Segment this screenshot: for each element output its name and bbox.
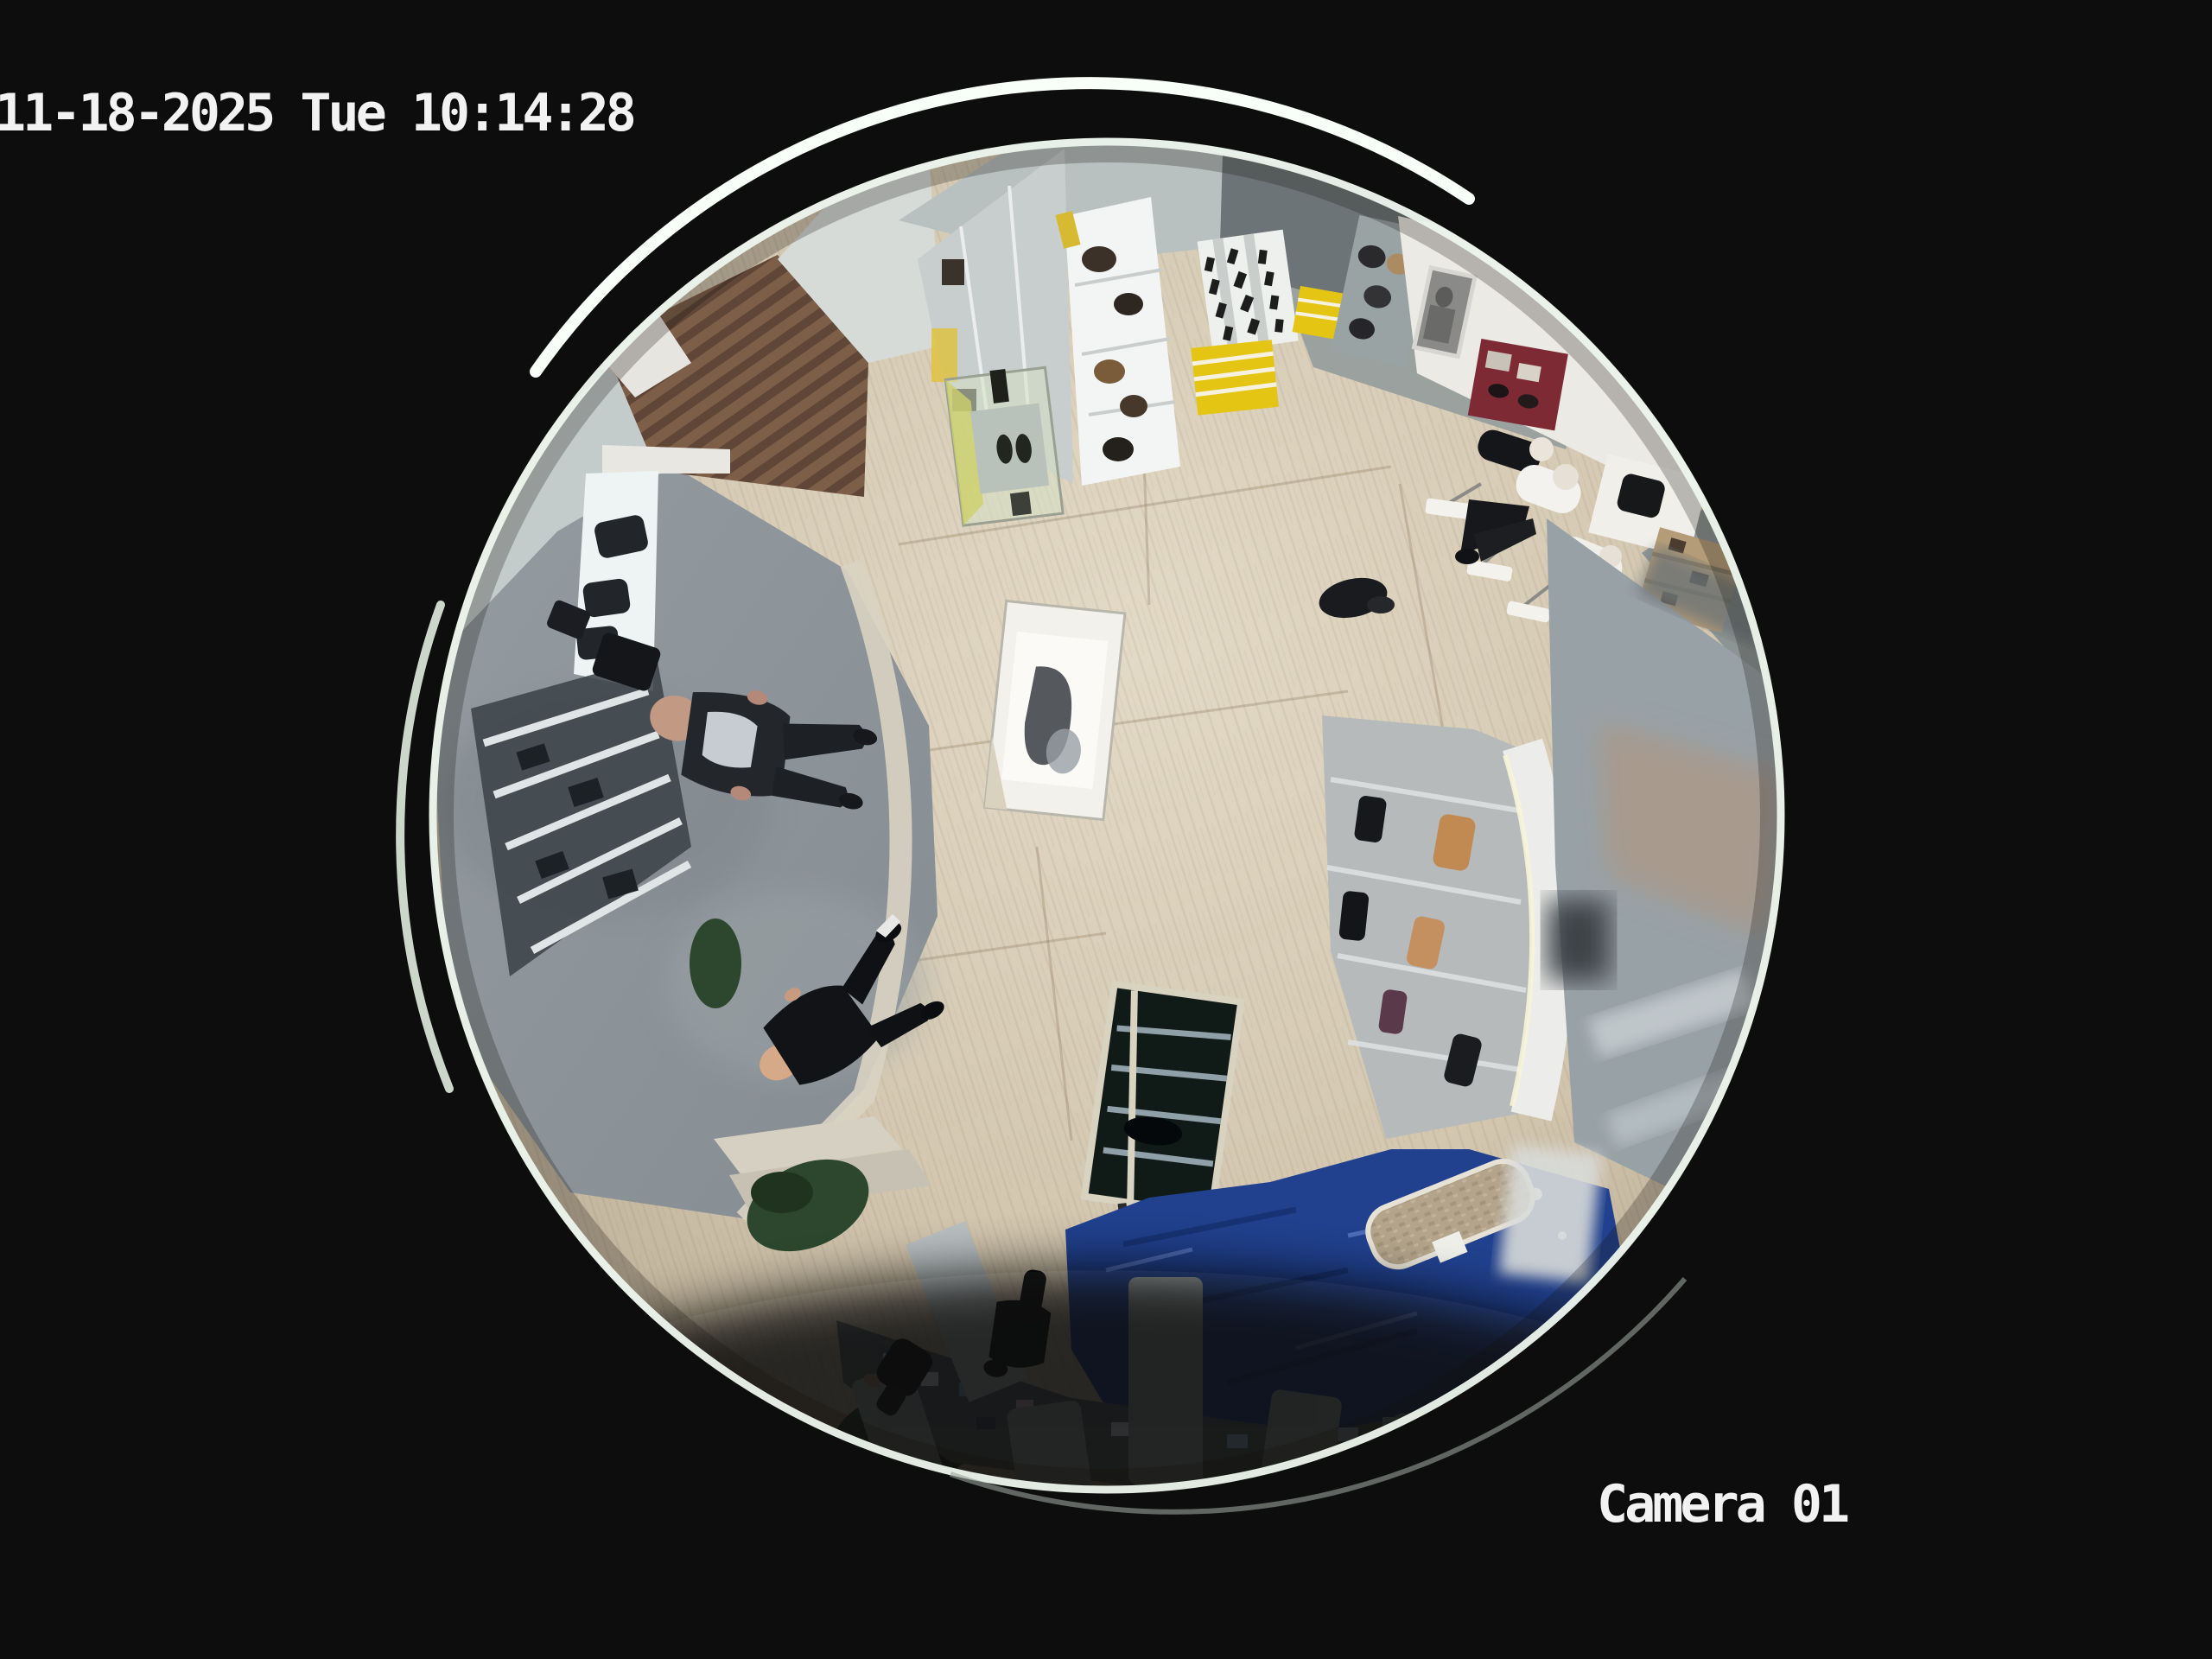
- osd-timestamp: 11-18-2025 Tue 10:14:28: [0, 83, 633, 143]
- white-display-table: [985, 601, 1125, 820]
- cctv-monitor-screen: { "osd": { "timestamp": "11-18-2025 Tue …: [0, 0, 2212, 1659]
- osd-camera-label: Camera 01: [1597, 1474, 1847, 1535]
- yellow-drawer-stack-left: [1191, 340, 1279, 415]
- glass-cube-display: [945, 364, 1063, 525]
- pegboard-wall: [1198, 230, 1299, 353]
- red-display-box: [1468, 339, 1568, 430]
- fisheye-camera-view: [0, 0, 2212, 1659]
- lens-bottom-shadow: [294, 1270, 1918, 1659]
